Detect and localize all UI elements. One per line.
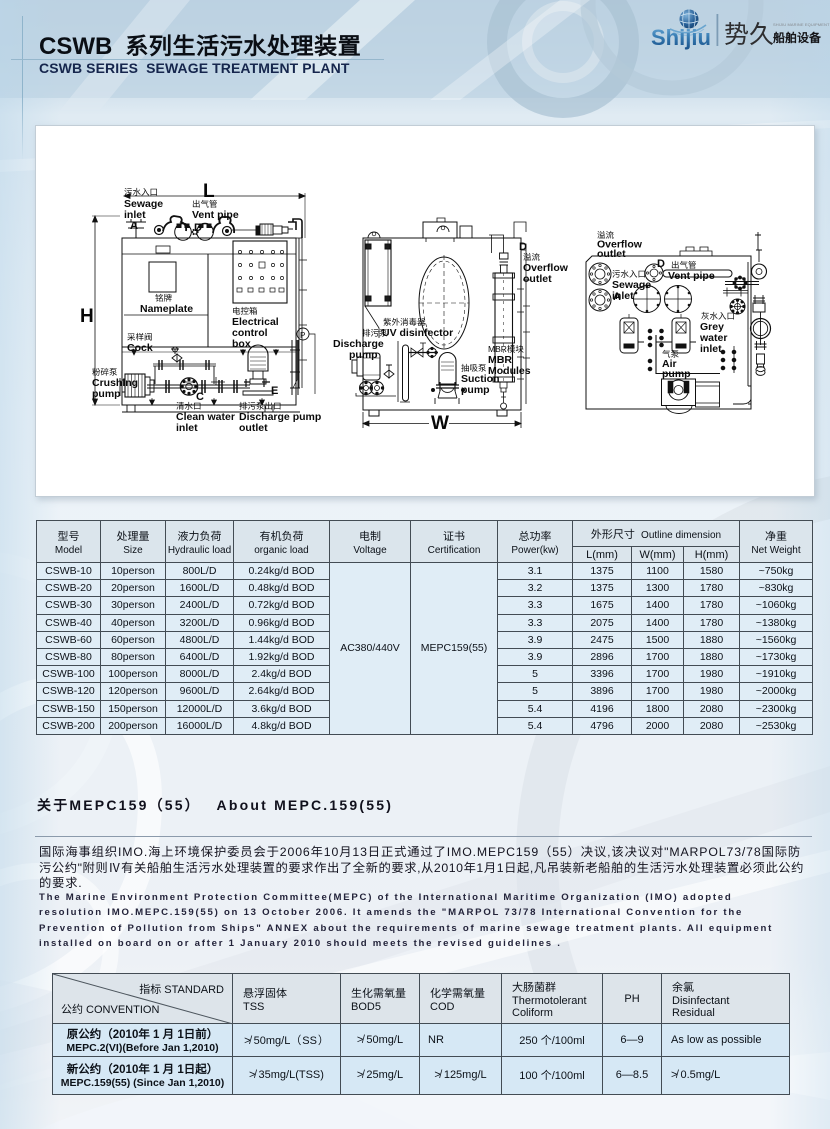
svg-text:box: box (232, 338, 251, 350)
svg-text:出气管: 出气管 (671, 260, 697, 270)
svg-text:inlet: inlet (176, 422, 198, 434)
svg-text:inlet: inlet (700, 343, 722, 355)
svg-text:船舶设备: 船舶设备 (773, 29, 822, 46)
svg-text:MBR模块: MBR模块 (488, 344, 524, 354)
svg-text:A: A (130, 220, 138, 232)
svg-text:清水口: 清水口 (176, 401, 202, 411)
svg-text:pump: pump (461, 384, 490, 396)
svg-text:pump: pump (92, 388, 121, 400)
svg-text:E: E (271, 385, 278, 397)
svg-text:抽吸泵: 抽吸泵 (461, 363, 487, 373)
svg-text:污水入口: 污水入口 (124, 187, 158, 197)
svg-text:Shijiu: Shijiu (651, 25, 711, 50)
svg-text:粉碎泵: 粉碎泵 (92, 367, 118, 377)
svg-text:溢流: 溢流 (523, 252, 541, 262)
svg-text:紫外消毒器: 紫外消毒器 (383, 317, 426, 327)
svg-text:outlet: outlet (523, 273, 552, 285)
svg-text:A: A (613, 291, 621, 303)
svg-text:pump: pump (662, 368, 691, 380)
svg-text:Cock: Cock (127, 342, 153, 354)
svg-text:pump: pump (349, 349, 378, 361)
svg-text:出气管: 出气管 (192, 199, 218, 209)
svg-text:铭牌: 铭牌 (155, 293, 173, 303)
svg-text:排污泵出口: 排污泵出口 (239, 401, 282, 411)
svg-text:电控箱: 电控箱 (232, 306, 258, 316)
svg-text:Nameplate: Nameplate (140, 303, 193, 315)
svg-text:D: D (657, 258, 665, 270)
svg-text:D: D (194, 222, 202, 234)
svg-text:SHIJIU MARINE EQUIPMENT: SHIJIU MARINE EQUIPMENT (773, 22, 830, 27)
svg-text:Vent pipe: Vent pipe (192, 209, 239, 221)
svg-text:H: H (80, 306, 94, 327)
svg-text:污水入口: 污水入口 (612, 269, 646, 279)
svg-text:outlet: outlet (597, 248, 626, 260)
svg-text:Modules: Modules (488, 365, 531, 377)
svg-text:P: P (300, 331, 305, 340)
svg-text:Vent pipe: Vent pipe (668, 270, 715, 282)
svg-text:灰水入口: 灰水入口 (701, 311, 735, 321)
svg-text:势久: 势久 (724, 15, 774, 51)
svg-text:采样阀: 采样阀 (127, 332, 153, 342)
svg-text:W: W (431, 413, 449, 434)
svg-text:outlet: outlet (239, 422, 268, 434)
svg-text:UV disinfector: UV disinfector (382, 327, 453, 339)
